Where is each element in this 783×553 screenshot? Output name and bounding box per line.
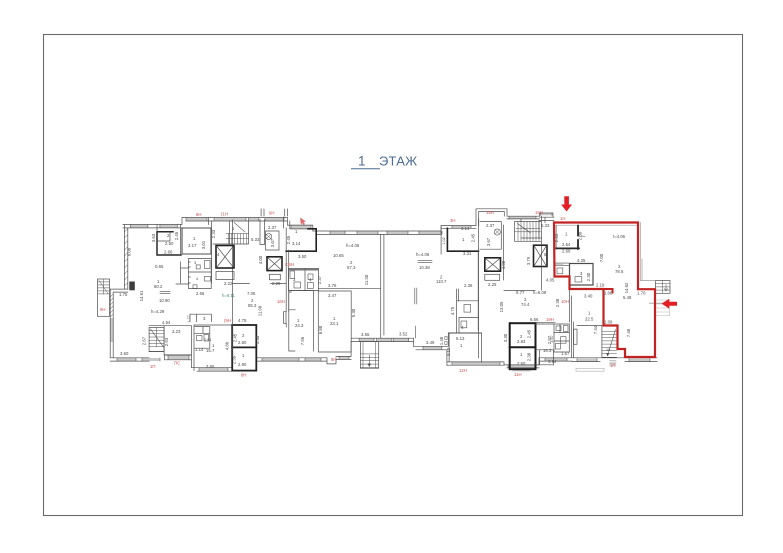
svg-text:2.38: 2.38 bbox=[527, 352, 532, 361]
svg-text:22.5: 22.5 bbox=[585, 317, 594, 322]
svg-text:1.75: 1.75 bbox=[119, 292, 128, 297]
svg-text:2.37: 2.37 bbox=[486, 223, 495, 228]
svg-text:3.23: 3.23 bbox=[172, 329, 181, 334]
svg-text:3.14: 3.14 bbox=[292, 241, 301, 246]
svg-text:80.2: 80.2 bbox=[154, 284, 163, 289]
svg-text:1.48: 1.48 bbox=[439, 336, 444, 345]
svg-text:3.63: 3.63 bbox=[151, 233, 156, 242]
svg-text:1.14: 1.14 bbox=[195, 347, 204, 352]
svg-text:1.08: 1.08 bbox=[604, 291, 613, 296]
svg-text:78.5: 78.5 bbox=[615, 269, 624, 274]
svg-text:3: 3 bbox=[194, 261, 196, 265]
svg-text:3.79: 3.79 bbox=[526, 256, 531, 265]
svg-text:h=4.06: h=4.06 bbox=[346, 243, 360, 248]
svg-text:2.43: 2.43 bbox=[554, 233, 559, 242]
svg-text:3.50: 3.50 bbox=[298, 254, 307, 259]
svg-text:16.3: 16.3 bbox=[543, 348, 552, 353]
svg-text:1Н: 1Н bbox=[560, 216, 566, 221]
svg-text:4.75: 4.75 bbox=[238, 318, 247, 323]
svg-text:0.65: 0.65 bbox=[155, 264, 164, 269]
svg-text:3.49: 3.49 bbox=[426, 340, 435, 345]
svg-text:t=4.06: t=4.06 bbox=[613, 234, 626, 239]
svg-text:2.80: 2.80 bbox=[238, 340, 247, 345]
svg-text:h=6.09: h=6.09 bbox=[533, 290, 547, 295]
svg-text:3.30: 3.30 bbox=[255, 335, 260, 344]
svg-text:2.45: 2.45 bbox=[471, 233, 476, 242]
svg-text:2.30: 2.30 bbox=[586, 272, 591, 281]
svg-text:3.14: 3.14 bbox=[461, 226, 470, 231]
svg-text:10: 10 bbox=[606, 348, 610, 352]
svg-text:10.90: 10.90 bbox=[159, 298, 170, 303]
svg-text:2.36: 2.36 bbox=[464, 283, 473, 288]
svg-text:13.05: 13.05 bbox=[499, 301, 504, 312]
svg-text:3.94: 3.94 bbox=[548, 359, 557, 364]
svg-text:4.00: 4.00 bbox=[258, 255, 263, 264]
svg-text:3.67: 3.67 bbox=[486, 237, 491, 246]
svg-text:3.65: 3.65 bbox=[206, 364, 215, 369]
svg-text:110.7: 110.7 bbox=[436, 279, 447, 284]
svg-text:9Н: 9Н bbox=[269, 211, 275, 216]
svg-text:3.52: 3.52 bbox=[399, 332, 408, 337]
svg-text:9.77: 9.77 bbox=[516, 290, 525, 295]
svg-text:5.48: 5.48 bbox=[623, 295, 632, 300]
svg-text:2.22: 2.22 bbox=[224, 281, 233, 286]
svg-text:67.3: 67.3 bbox=[347, 265, 356, 270]
svg-text:10Н: 10Н bbox=[561, 299, 569, 304]
svg-text:h=4.29: h=4.29 bbox=[151, 309, 165, 314]
svg-text:2.37: 2.37 bbox=[268, 225, 277, 230]
svg-text:15.7: 15.7 bbox=[206, 348, 215, 353]
svg-text:4.25: 4.25 bbox=[577, 258, 586, 263]
svg-text:2.60: 2.60 bbox=[517, 361, 526, 366]
svg-text:10.38: 10.38 bbox=[419, 265, 430, 270]
svg-text:2.93: 2.93 bbox=[164, 337, 169, 346]
svg-text:1.77: 1.77 bbox=[187, 315, 191, 322]
svg-text:24.3: 24.3 bbox=[295, 323, 304, 328]
svg-text:2.38: 2.38 bbox=[555, 298, 560, 307]
svg-text:12Н: 12Н bbox=[459, 368, 467, 373]
svg-text:4.86: 4.86 bbox=[225, 341, 230, 350]
svg-text:15Н: 15Н bbox=[486, 210, 494, 215]
svg-text:2.39: 2.39 bbox=[232, 355, 237, 364]
svg-text:3.60: 3.60 bbox=[120, 351, 129, 356]
svg-text:85.3: 85.3 bbox=[248, 303, 257, 308]
svg-text:7.06: 7.06 bbox=[247, 291, 256, 296]
svg-text:h=4.06: h=4.06 bbox=[416, 252, 430, 257]
svg-text:2.33: 2.33 bbox=[211, 229, 216, 238]
svg-text:4: 4 bbox=[196, 277, 198, 281]
svg-text:10.65: 10.65 bbox=[333, 253, 344, 258]
svg-text:2.69: 2.69 bbox=[562, 249, 571, 254]
svg-text:2.45: 2.45 bbox=[174, 231, 179, 240]
svg-text:4.75: 4.75 bbox=[450, 306, 455, 315]
svg-text:4.05: 4.05 bbox=[546, 278, 555, 283]
svg-text:2.25: 2.25 bbox=[488, 282, 497, 287]
svg-text:ПС: ПС bbox=[174, 361, 180, 366]
svg-text:7.48: 7.48 bbox=[626, 328, 631, 337]
svg-text:5.13: 5.13 bbox=[456, 336, 465, 341]
svg-text:3.67: 3.67 bbox=[550, 335, 554, 342]
svg-text:1.09: 1.09 bbox=[604, 320, 613, 325]
svg-text:11Н: 11Н bbox=[514, 372, 522, 377]
svg-text:14.61: 14.61 bbox=[139, 290, 144, 301]
svg-text:6.56: 6.56 bbox=[530, 317, 539, 322]
svg-text:11.98: 11.98 bbox=[258, 305, 263, 316]
svg-text:19Н: 19Н bbox=[546, 317, 554, 322]
svg-text:8Н: 8Н bbox=[241, 373, 247, 378]
svg-text:7.00: 7.00 bbox=[599, 253, 604, 262]
svg-text:2.66: 2.66 bbox=[196, 291, 205, 296]
svg-text:2.45: 2.45 bbox=[233, 333, 238, 342]
svg-text:5.30: 5.30 bbox=[351, 308, 356, 317]
svg-text:2.45: 2.45 bbox=[527, 329, 532, 338]
svg-text:ЭТАЖ: ЭТАЖ bbox=[379, 154, 417, 169]
svg-text:3.17: 3.17 bbox=[188, 243, 197, 248]
svg-text:1.67: 1.67 bbox=[561, 351, 570, 356]
svg-text:2.90: 2.90 bbox=[238, 362, 247, 367]
svg-text:2.80: 2.80 bbox=[578, 231, 583, 240]
svg-text:(9Н: (9Н bbox=[224, 318, 231, 323]
svg-text:2.50: 2.50 bbox=[165, 241, 174, 246]
svg-text:3.55: 3.55 bbox=[361, 332, 370, 337]
svg-text:3.30: 3.30 bbox=[503, 333, 508, 342]
svg-text:5.33: 5.33 bbox=[251, 237, 260, 242]
svg-text:7.44: 7.44 bbox=[593, 325, 598, 334]
svg-text:2.37: 2.37 bbox=[317, 275, 322, 284]
svg-text:3.31: 3.31 bbox=[463, 251, 472, 256]
svg-text:1П: 1П bbox=[610, 363, 615, 368]
svg-text:74.4: 74.4 bbox=[521, 302, 530, 307]
svg-text:2.29: 2.29 bbox=[272, 281, 281, 286]
svg-text:СВН: СВН bbox=[285, 262, 294, 267]
svg-text:1П: 1П bbox=[150, 364, 155, 369]
svg-text:3.76: 3.76 bbox=[328, 283, 337, 288]
svg-text:14.62: 14.62 bbox=[624, 282, 629, 293]
svg-text:23.1: 23.1 bbox=[330, 321, 339, 326]
svg-text:7.96: 7.96 bbox=[300, 336, 305, 345]
svg-text:3.67: 3.67 bbox=[270, 238, 275, 247]
svg-text:(1Н: (1Н bbox=[221, 212, 228, 217]
svg-text:3.01: 3.01 bbox=[201, 240, 206, 249]
svg-text:3Н: 3Н bbox=[450, 218, 456, 223]
svg-text:3.40: 3.40 bbox=[584, 294, 593, 299]
svg-text:9Н: 9Н bbox=[100, 307, 106, 312]
svg-text:3.10: 3.10 bbox=[446, 347, 451, 356]
svg-text:2.66: 2.66 bbox=[164, 250, 173, 255]
svg-text:8.08: 8.08 bbox=[127, 247, 132, 256]
svg-text:1: 1 bbox=[358, 154, 366, 169]
svg-text:4.54: 4.54 bbox=[162, 320, 171, 325]
svg-text:1.70: 1.70 bbox=[637, 291, 646, 296]
svg-text:4.00: 4.00 bbox=[501, 260, 506, 269]
svg-text:2.54: 2.54 bbox=[562, 242, 571, 247]
svg-text:2.19: 2.19 bbox=[596, 283, 605, 288]
svg-text:2.67: 2.67 bbox=[142, 336, 147, 345]
svg-text:2.83: 2.83 bbox=[517, 339, 526, 344]
svg-text:8Н: 8Н bbox=[196, 212, 202, 217]
svg-text:11.30: 11.30 bbox=[364, 274, 369, 285]
svg-text:3.47: 3.47 bbox=[328, 293, 337, 298]
svg-text:0.94: 0.94 bbox=[204, 338, 211, 342]
svg-text:5.33: 5.33 bbox=[541, 223, 550, 228]
svg-text:2.45: 2.45 bbox=[286, 235, 291, 244]
svg-text:h=6.11: h=6.11 bbox=[222, 293, 236, 298]
svg-text:15Н: 15Н bbox=[535, 210, 543, 215]
svg-text:8Н: 8Н bbox=[331, 357, 337, 362]
svg-text:16Н: 16Н bbox=[277, 299, 285, 304]
svg-text:6.88: 6.88 bbox=[318, 325, 323, 334]
svg-text:1.02: 1.02 bbox=[442, 237, 446, 244]
